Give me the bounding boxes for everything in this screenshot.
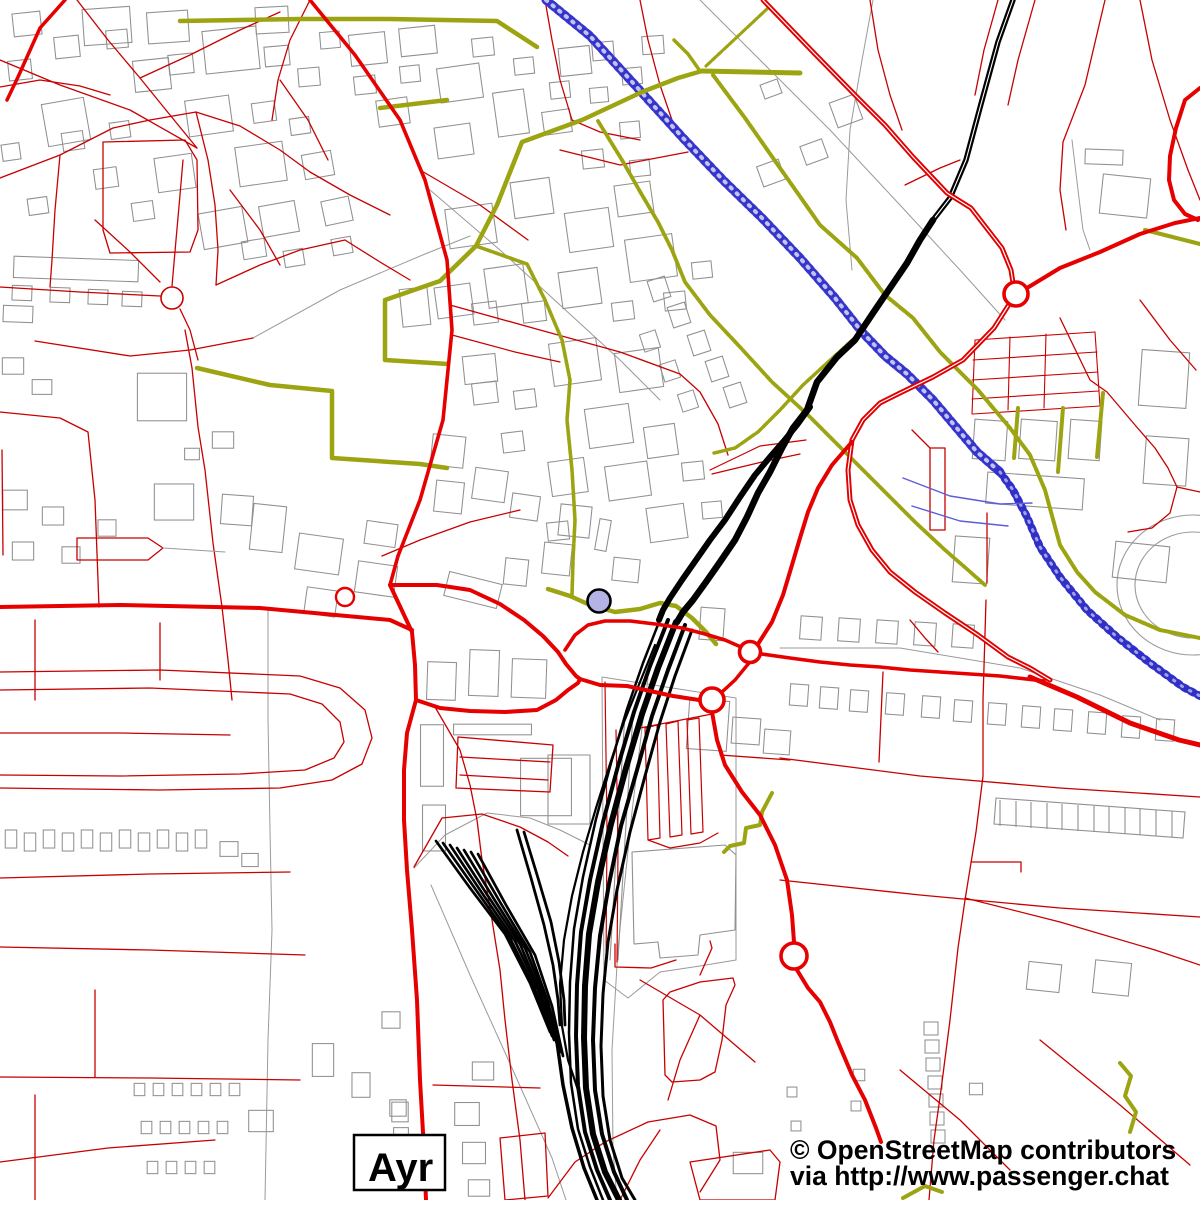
svg-text:via http://www.passenger.chat: via http://www.passenger.chat (790, 1161, 1169, 1191)
svg-text:Ayr: Ayr (368, 1146, 433, 1190)
